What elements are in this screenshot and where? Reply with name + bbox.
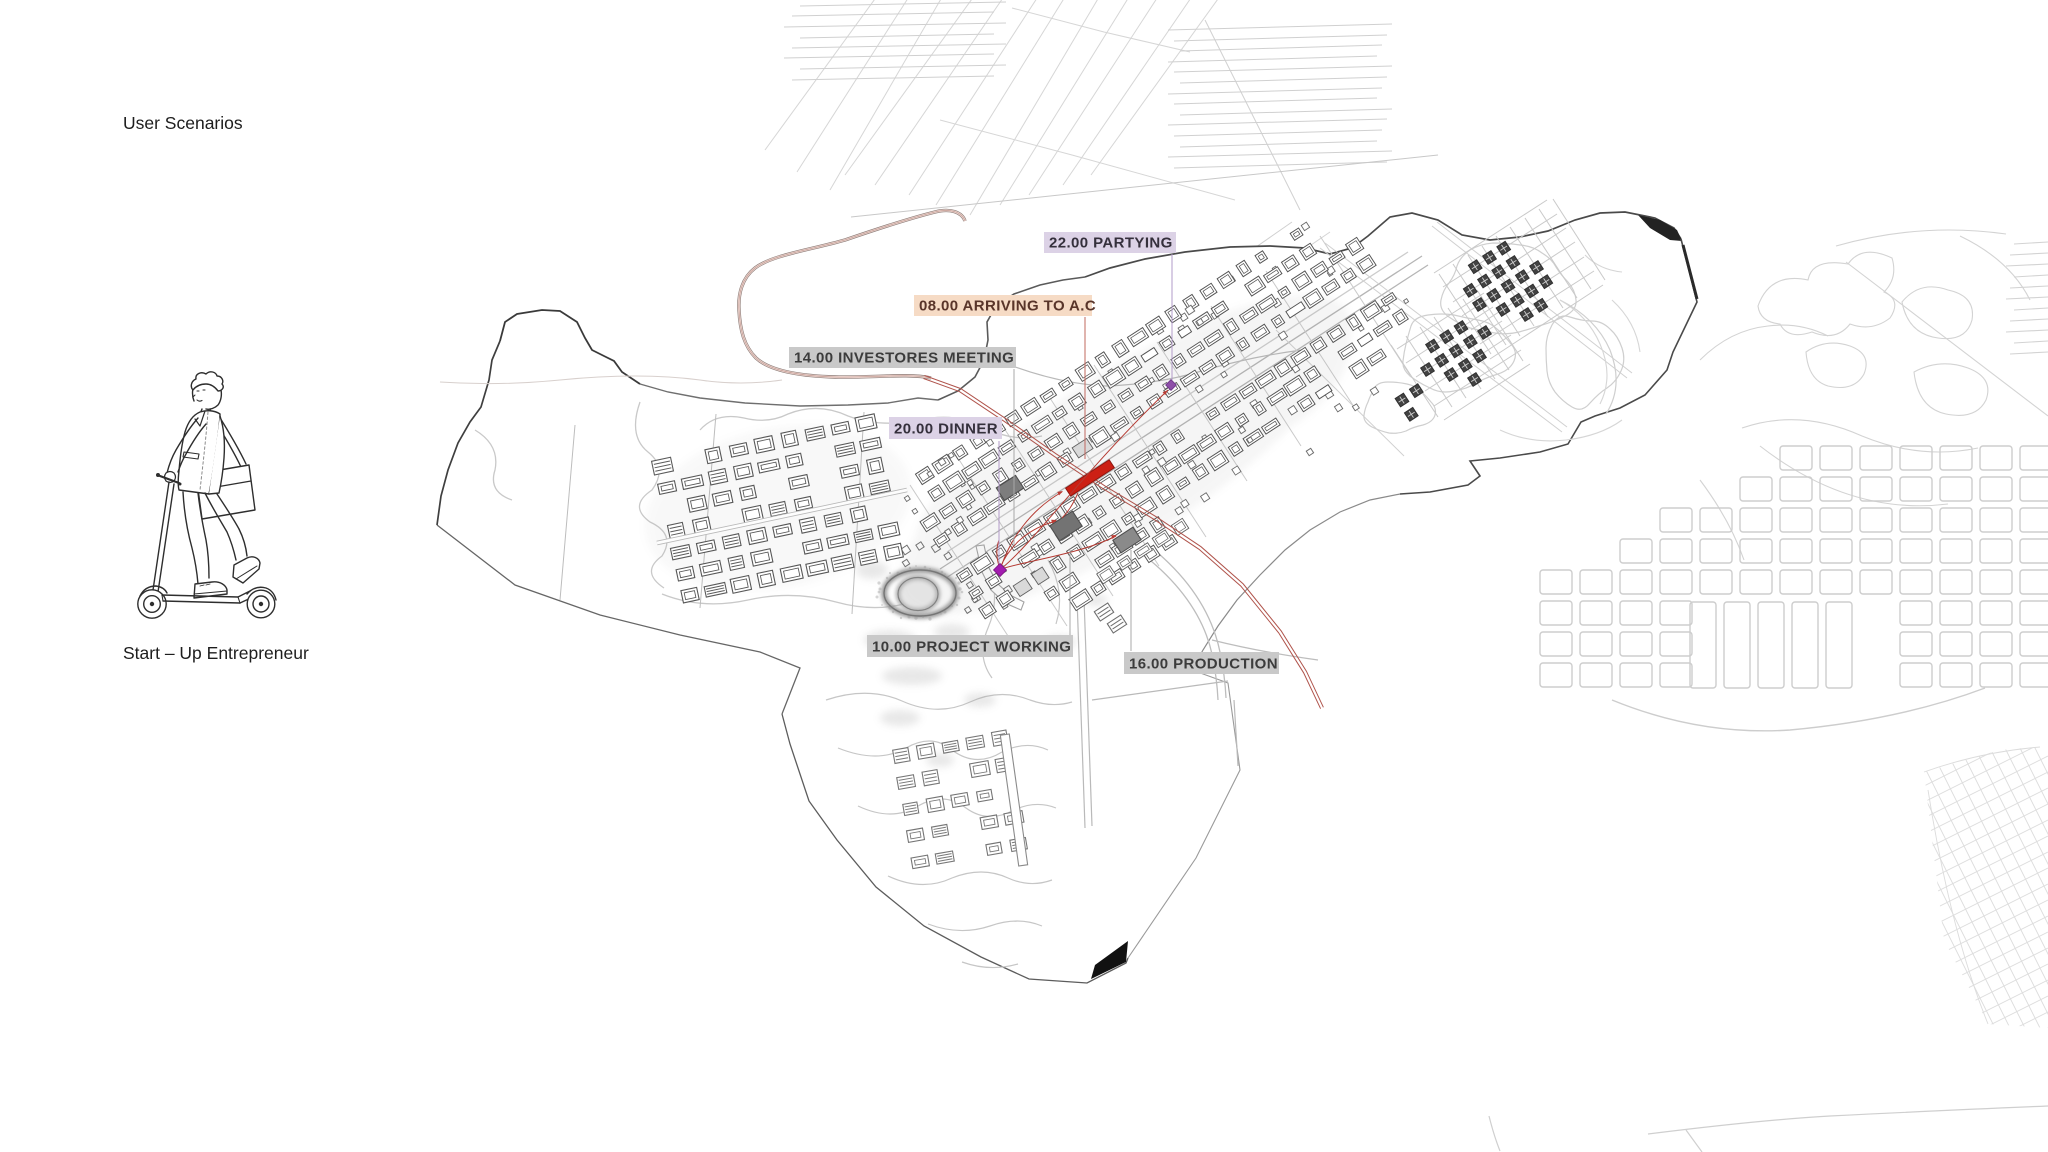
svg-text:14.00 INVESTORES MEETING: 14.00 INVESTORES MEETING [794,350,1014,367]
svg-text:22.00 PARTYING: 22.00 PARTYING [1049,235,1173,252]
svg-text:User Scenarios: User Scenarios [123,113,243,133]
svg-text:Start – Up Entrepreneur: Start – Up Entrepreneur [123,643,309,663]
svg-text:08.00 ARRIVING TO A.C: 08.00 ARRIVING TO A.C [919,298,1096,315]
svg-text:10.00 PROJECT WORKING: 10.00 PROJECT WORKING [872,639,1071,656]
svg-text:20.00 DINNER: 20.00 DINNER [894,421,998,438]
svg-text:16.00 PRODUCTION: 16.00 PRODUCTION [1129,656,1278,673]
